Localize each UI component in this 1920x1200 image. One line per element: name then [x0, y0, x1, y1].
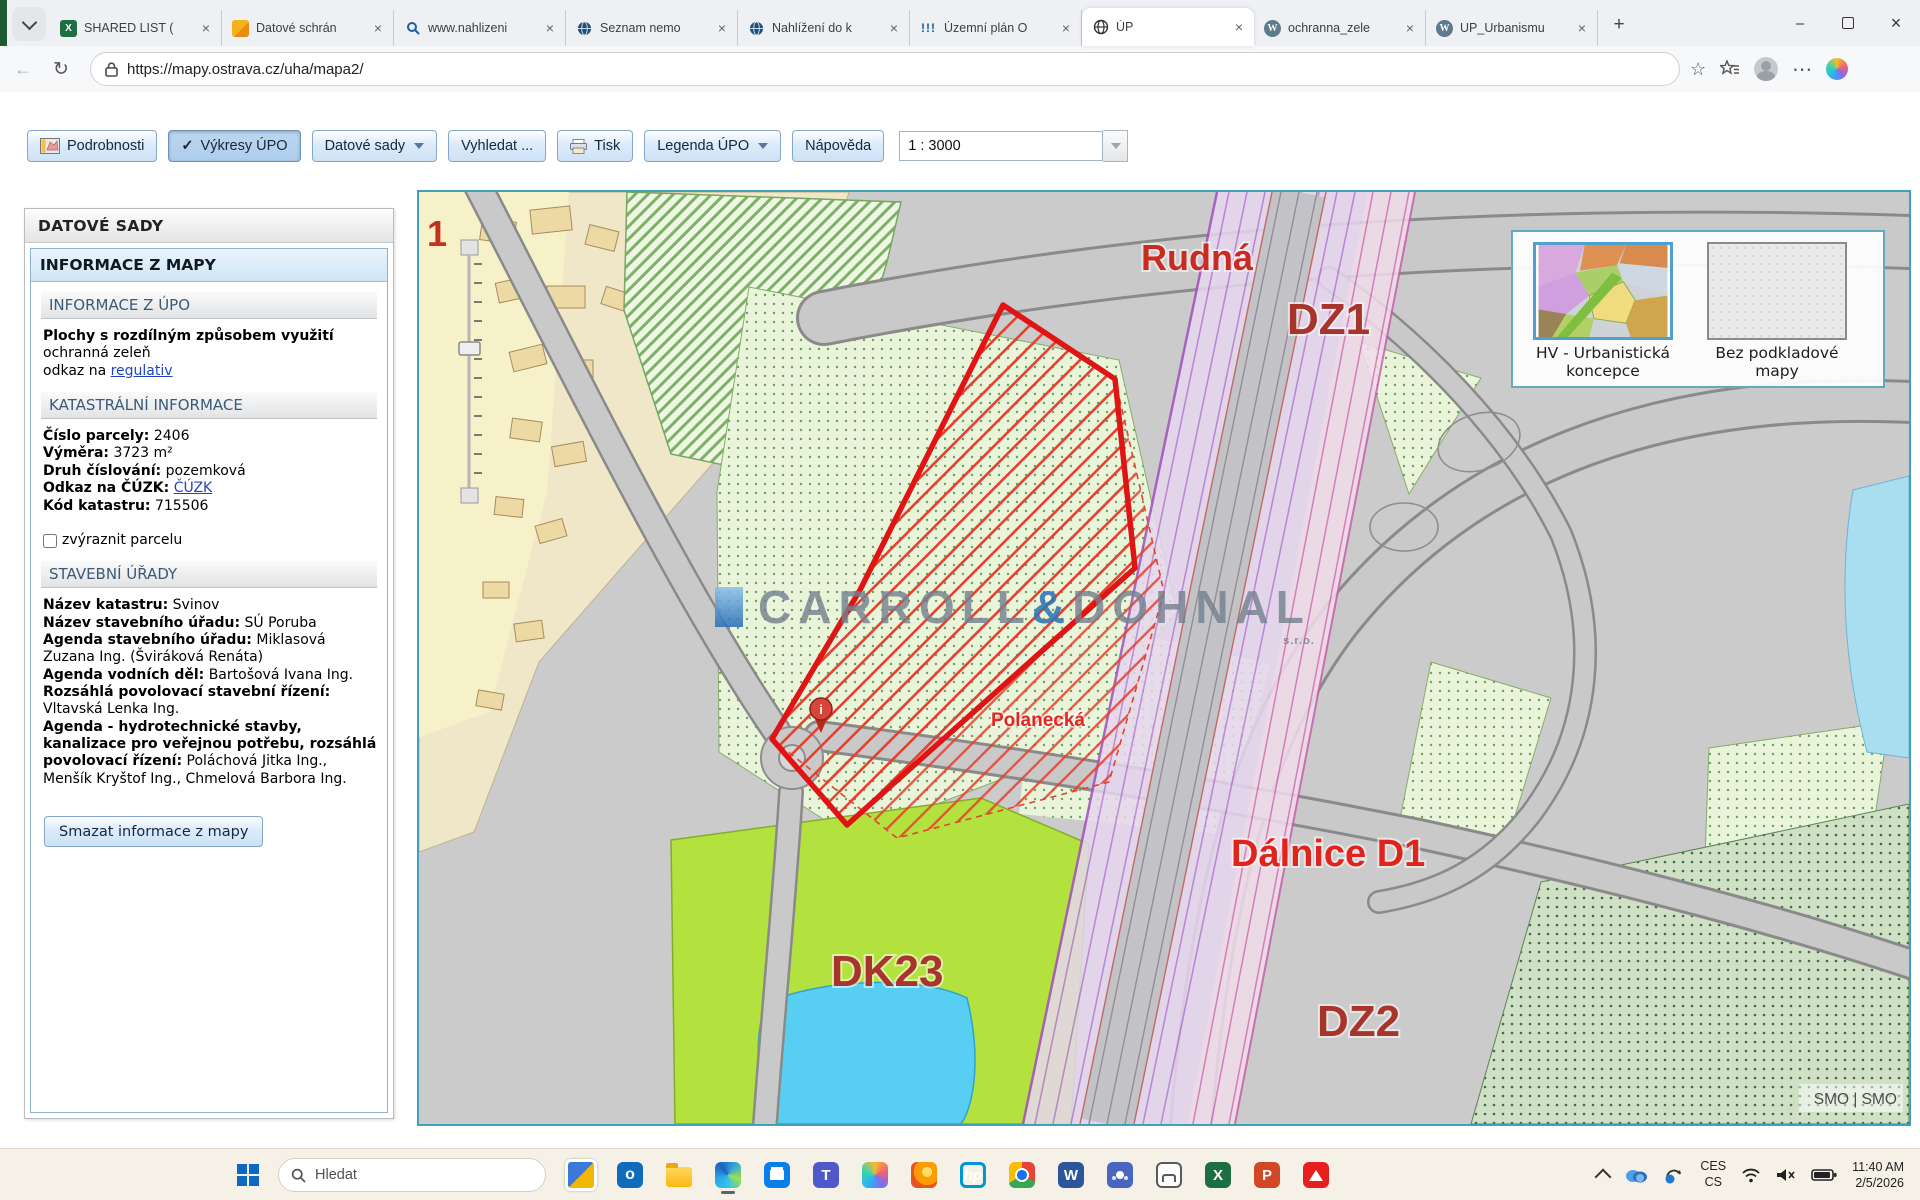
upo-heading: Plochy s rozdílným způsobem využití	[43, 328, 377, 345]
printer-icon	[570, 139, 587, 154]
regulativ-link[interactable]: regulativ	[111, 363, 173, 379]
wordpress-favicon-icon	[1436, 20, 1453, 37]
upo-link-row: odkaz na regulativ	[43, 363, 377, 380]
connections-icon[interactable]	[1150, 1155, 1188, 1195]
maximize-button[interactable]	[1824, 0, 1872, 46]
profile-avatar[interactable]	[1754, 57, 1778, 81]
tab-up-urbanismus[interactable]: UP_Urbanismu	[1426, 10, 1598, 46]
informace-z-mapy-panel: INFORMACE Z MAPY INFORMACE Z ÚPO Plochy …	[30, 248, 388, 1113]
tab-datove-schranky[interactable]: Datové schrán	[222, 10, 394, 46]
cuzk-link[interactable]: ČÚZK	[174, 480, 213, 496]
onedrive-icon[interactable]	[1624, 1167, 1648, 1183]
tab-label: Seznam nemo	[600, 21, 713, 35]
favorites-bar-icon[interactable]	[1720, 60, 1740, 78]
firefox-icon[interactable]	[905, 1155, 943, 1195]
katastr-section-body: Číslo parcely: 2406 Výměra: 3723 m² Druh…	[41, 428, 377, 549]
tab-label: Územní plán O	[944, 21, 1057, 35]
tab-close-icon[interactable]	[1057, 19, 1075, 37]
panel-title: INFORMACE Z MAPY	[40, 256, 216, 274]
outlook-icon[interactable]	[611, 1155, 649, 1195]
hp-icon[interactable]	[954, 1155, 992, 1195]
urady-row: Agenda - hydrotechnické stavby, kanaliza…	[43, 719, 377, 788]
datove-sady-title: DATOVÉ SADY	[38, 217, 164, 235]
basemap-option-hv[interactable]: HV - Urbanistická koncepce	[1527, 242, 1679, 376]
tab-close-icon[interactable]	[369, 19, 387, 37]
label-dz1: DZ1	[1287, 295, 1370, 344]
chrome-icon[interactable]	[1003, 1155, 1041, 1195]
page-content: Podrobnosti Výkresy ÚPO Datové sady Vyhl…	[0, 92, 1920, 1148]
tab-close-icon[interactable]	[713, 19, 731, 37]
address-bar[interactable]: https://mapy.ostrava.cz/uha/mapa2/	[90, 52, 1680, 86]
map-toolbar: Podrobnosti Výkresy ÚPO Datové sady Vyhl…	[27, 130, 1128, 162]
navbar-right	[1690, 57, 1848, 82]
basemap-thumbnail-hv[interactable]	[1533, 242, 1673, 340]
sync-icon[interactable]	[1663, 1165, 1685, 1185]
browser-navbar: https://mapy.ostrava.cz/uha/mapa2/	[0, 46, 1920, 93]
tisk-label: Tisk	[594, 138, 620, 154]
wordpress-favicon-icon	[1264, 20, 1281, 37]
taskbar-apps	[562, 1155, 1335, 1195]
urady-section-body: Název katastru: Svinov Název stavebního …	[41, 597, 377, 788]
pond	[758, 982, 975, 1124]
excel-icon[interactable]	[1199, 1155, 1237, 1195]
search-placeholder: Hledat	[315, 1167, 357, 1183]
datove-sady-panel: DATOVÉ SADY INFORMACE Z MAPY INFORMACE Z…	[24, 208, 394, 1119]
tab-seznam-nemovitosti[interactable]: Seznam nemo	[566, 10, 738, 46]
window-controls	[1776, 0, 1920, 46]
datovka-favicon-icon	[232, 20, 249, 37]
browser-tabstrip: SHARED LIST ( Datové schrán www.nahlizen…	[0, 0, 1920, 47]
caret-down-icon	[758, 143, 768, 149]
url-text: https://mapy.ostrava.cz/uha/mapa2/	[127, 61, 364, 78]
basemap-thumb-image	[1536, 245, 1670, 337]
tab-label: ochranna_zele	[1288, 21, 1401, 35]
tab-ochranna-zelen[interactable]: ochranna_zele	[1254, 10, 1426, 46]
volume-mute-icon[interactable]	[1776, 1167, 1796, 1183]
vykresy-upo-button[interactable]: Výkresy ÚPO	[168, 130, 300, 162]
taskbar: Hledat CESCS	[0, 1148, 1920, 1200]
map-attribution: SMO | SMO	[1814, 1091, 1897, 1108]
katastr-row: Výměra: 3723 m²	[43, 445, 377, 462]
tab-label: www.nahlizeni	[428, 21, 541, 35]
uzemni-plan-favicon-icon	[920, 20, 937, 37]
battery-icon[interactable]	[1811, 1168, 1837, 1182]
refresh-button[interactable]	[46, 54, 76, 84]
tab-label: ÚP	[1116, 20, 1230, 34]
watermark: CARROLL&DOHNALs.r.o.	[715, 580, 1311, 634]
tab-label: SHARED LIST (	[84, 21, 197, 35]
katastr-row: Číslo parcely: 2406	[43, 428, 377, 445]
urady-row: Název stavebního úřadu: SÚ Poruba	[43, 615, 377, 632]
windows-icon	[237, 1164, 259, 1186]
info-marker-i: i	[819, 702, 823, 717]
informace-z-mapy-header[interactable]: INFORMACE Z MAPY	[31, 249, 387, 282]
vykresy-label: Výkresy ÚPO	[201, 138, 288, 154]
katastr-row: Kód katastru: 715506	[43, 498, 377, 515]
tab-close-icon[interactable]	[541, 19, 559, 37]
basemap-label: HV - Urbanistická koncepce	[1527, 345, 1679, 381]
basemap-thumbnail-none[interactable]	[1707, 242, 1847, 340]
browser-menu-icon[interactable]	[1792, 57, 1812, 82]
word-icon[interactable]	[1052, 1155, 1090, 1195]
scale-input[interactable]: 1 : 3000	[899, 131, 1103, 161]
label-dz2: DZ2	[1317, 997, 1400, 1046]
tab-label: Datové schrán	[256, 21, 369, 35]
tisk-button[interactable]: Tisk	[557, 130, 633, 162]
globe-favicon-icon	[748, 20, 765, 37]
katastr-section-header: KATASTRÁLNÍ INFORMACE	[41, 392, 377, 419]
chevron-down-icon	[21, 14, 37, 30]
tab-label: UP_Urbanismu	[1460, 21, 1573, 35]
teams-icon[interactable]	[807, 1155, 845, 1195]
zoom-out-button[interactable]	[461, 488, 478, 503]
upo-section-body: Plochy s rozdílným způsobem využití ochr…	[41, 328, 377, 380]
katastr-row: Odkaz na ČÚZK: ČÚZK	[43, 480, 377, 497]
map-marker-1: 1	[427, 213, 447, 254]
zoom-in-button[interactable]	[461, 240, 478, 255]
urady-row: Rozsáhlá povolovací stavební řízení: Vlt…	[43, 684, 377, 719]
datove-sady-label: Datové sady	[325, 138, 406, 154]
tab-search-button[interactable]	[12, 7, 46, 41]
favorite-star-icon[interactable]	[1690, 59, 1706, 80]
magnifier-favicon-icon	[404, 20, 421, 37]
checkbox-label: zvýraznit parcelu	[62, 532, 182, 549]
label-polanecka: Polanecká	[991, 710, 1085, 731]
smazat-informace-button[interactable]: Smazat informace z mapy	[44, 816, 263, 847]
tab-close-icon[interactable]	[885, 19, 903, 37]
tab-nahlizeni-web[interactable]: www.nahlizeni	[394, 10, 566, 46]
scale-combo: 1 : 3000	[899, 130, 1128, 162]
zoom-slider-handle[interactable]	[459, 342, 480, 355]
taskbar-search[interactable]: Hledat	[278, 1158, 546, 1192]
copilot-icon[interactable]	[1826, 58, 1848, 80]
napoveda-label: Nápověda	[805, 138, 871, 154]
acrobat-icon[interactable]	[1297, 1155, 1335, 1195]
watermark-logo-icon	[715, 587, 743, 627]
minimize-button[interactable]	[1776, 0, 1824, 46]
label-rudna: Rudná	[1141, 237, 1254, 278]
upo-link-prefix: odkaz na	[43, 363, 111, 379]
urady-row: Název katastru: Svinov	[43, 597, 377, 614]
podrobnosti-icon	[40, 138, 60, 154]
start-button[interactable]	[228, 1155, 268, 1195]
edge-icon[interactable]	[709, 1155, 747, 1195]
datove-sady-header[interactable]: DATOVÉ SADY	[25, 209, 393, 243]
urady-row: Agenda stavebního úřadu: Miklasová Zuzan…	[43, 632, 377, 667]
legenda-upo-button[interactable]: Legenda ÚPO	[644, 130, 781, 162]
copilot-icon[interactable]	[856, 1155, 894, 1195]
tab-nahlizeni-kn[interactable]: Nahlížení do k	[738, 10, 910, 46]
urady-row: Agenda vodních děl: Bartošová Ivana Ing.	[43, 667, 377, 684]
zvyraznit-parcelu-row: zvýraznit parcelu	[43, 532, 377, 549]
vyhledat-label: Vyhledat ...	[461, 138, 533, 154]
katastr-row: Druh číslování: pozemková	[43, 463, 377, 480]
widgets-icon[interactable]	[562, 1155, 600, 1195]
store-icon[interactable]	[758, 1155, 796, 1195]
new-tab-button[interactable]	[1604, 10, 1634, 40]
screen: SHARED LIST ( Datové schrán www.nahlizen…	[0, 0, 1920, 1200]
lock-icon	[105, 62, 118, 77]
watermark-text: CARROLL&DOHNALs.r.o.	[758, 580, 1311, 634]
vyhledat-button[interactable]: Vyhledat ...	[448, 130, 546, 162]
scale-dropdown-button[interactable]	[1103, 130, 1128, 162]
basemap-option-none[interactable]: Bez podkladové mapy	[1701, 242, 1853, 376]
panel-body: INFORMACE Z ÚPO Plochy s rozdílným způso…	[31, 282, 387, 1112]
search-icon	[291, 1168, 306, 1183]
globe-favicon-icon	[576, 20, 593, 37]
tray-chevron-icon[interactable]	[1595, 1169, 1612, 1186]
powerpoint-icon[interactable]	[1248, 1155, 1286, 1195]
watermark-suffix: s.r.o.	[1283, 635, 1315, 647]
tab-shared-list[interactable]: SHARED LIST (	[50, 10, 222, 46]
basemap-label: Bez podkladové mapy	[1701, 345, 1853, 381]
tab-up-active[interactable]: ÚP	[1082, 8, 1254, 46]
tab-close-icon[interactable]	[197, 19, 215, 37]
urady-section-header: STAVEBNÍ ÚŘADY	[41, 561, 377, 588]
system-tray: CESCS 11:40 AM2/5/2026	[1597, 1159, 1904, 1192]
caret-down-icon	[414, 143, 424, 149]
language-indicator[interactable]: CESCS	[1700, 1159, 1726, 1190]
upo-value: ochranná zeleň	[43, 345, 377, 362]
label-dk23: DK23	[831, 947, 944, 996]
podrobnosti-button[interactable]: Podrobnosti	[27, 130, 157, 162]
people-app-icon[interactable]	[1101, 1155, 1139, 1195]
caret-down-icon	[1111, 143, 1121, 149]
wifi-icon[interactable]	[1741, 1167, 1761, 1183]
tab-uzemni-plan[interactable]: Územní plán O	[910, 10, 1082, 46]
tab-close-icon[interactable]	[1573, 19, 1591, 37]
upo-section-header: INFORMACE Z ÚPO	[41, 292, 377, 319]
back-button[interactable]	[8, 54, 38, 84]
map-viewport[interactable]: i	[417, 190, 1911, 1126]
tab-close-icon[interactable]	[1230, 18, 1248, 36]
close-button[interactable]	[1872, 0, 1920, 46]
globe-favicon-icon	[1092, 19, 1109, 36]
tab-close-icon[interactable]	[1401, 19, 1419, 37]
podrobnosti-label: Podrobnosti	[67, 138, 144, 154]
check-icon	[181, 138, 193, 154]
workspace-indicator	[0, 0, 7, 46]
basemap-picker: HV - Urbanistická koncepce Bez podkladov…	[1511, 230, 1885, 388]
legenda-label: Legenda ÚPO	[657, 138, 749, 154]
napoveda-button[interactable]: Nápověda	[792, 130, 884, 162]
tab-label: Nahlížení do k	[772, 21, 885, 35]
datove-sady-button[interactable]: Datové sady	[312, 130, 438, 162]
file-explorer-icon[interactable]	[660, 1155, 698, 1195]
excel-favicon-icon	[60, 20, 77, 37]
taskbar-clock[interactable]: 11:40 AM2/5/2026	[1852, 1159, 1904, 1192]
label-dalnice-d1: Dálnice D1	[1231, 833, 1425, 875]
zvyraznit-parcelu-checkbox[interactable]	[43, 534, 57, 548]
